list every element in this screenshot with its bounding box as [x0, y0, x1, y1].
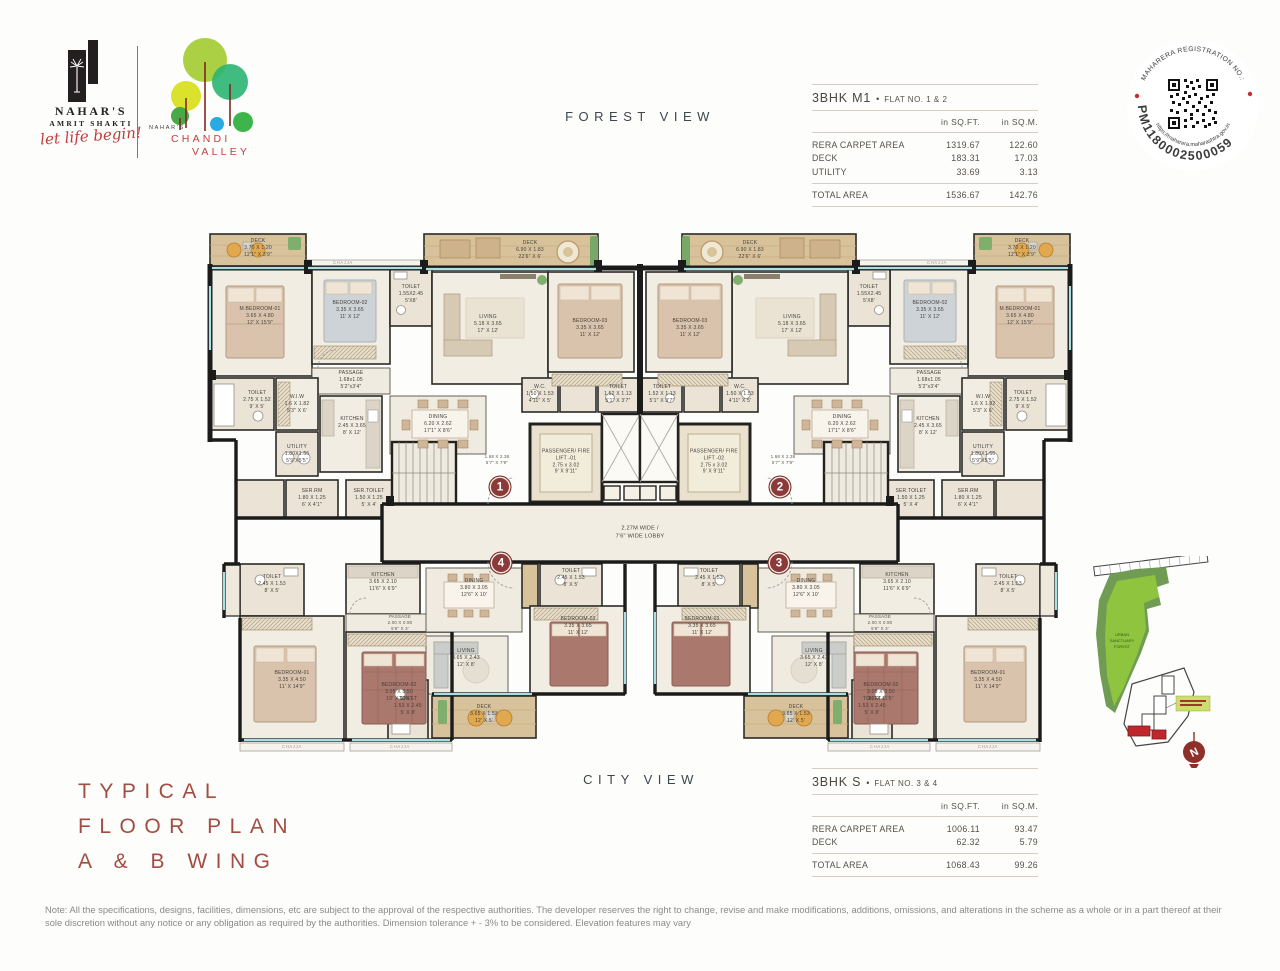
page-title-line3: A & B WING	[78, 850, 296, 874]
page-title-line2: FLOOR PLAN	[78, 815, 296, 839]
spec-table-3bhk-s: 3BHK S • FLAT NO. 3 & 4 in SQ.FT.in SQ.M…	[812, 768, 1038, 877]
city-view-label: CITY VIEW	[511, 772, 771, 787]
spec-table-3bhk-m1: 3BHK M1 • FLAT NO. 1 & 2 in SQ.FT.in SQ.…	[812, 84, 1038, 207]
stamp-dot	[1248, 92, 1252, 96]
col-sqft: in SQ.FT.	[906, 801, 980, 811]
logo-divider	[137, 46, 138, 158]
table-row: RERA CARPET AREA1319.67122.60	[812, 136, 1038, 150]
flat-numbers: FLAT NO. 1 & 2	[884, 95, 947, 104]
floor-plan-svg	[200, 228, 1080, 758]
chandivalley-trees-logo	[150, 34, 260, 134]
col-sqm: in SQ.M.	[980, 117, 1038, 127]
maharera-qr-stamp: MAHARERA REGISTRATION NO.: PM11800025000…	[1126, 38, 1260, 172]
bullet-separator: •	[866, 778, 869, 788]
col-sqft: in SQ.FT.	[906, 117, 980, 127]
forest-label-line: FOREST	[1114, 644, 1131, 649]
project-name-line1: CHANDI	[171, 133, 230, 145]
table-body: RERA CARPET AREA1006.1193.47 DECK62.325.…	[812, 817, 1038, 854]
unit-number-1: 1	[489, 476, 512, 499]
table-title: 3BHK S • FLAT NO. 3 & 4	[812, 768, 1038, 795]
forest-view-label: FOREST VIEW	[510, 109, 770, 124]
project-prefix: NAHAR'S	[149, 125, 185, 131]
unit-number-2: 2	[769, 476, 792, 499]
table-row: RERA CARPET AREA1006.1193.47	[812, 820, 1038, 834]
table-row: DECK183.3117.03	[812, 150, 1038, 164]
unit-number-4: 4	[490, 552, 513, 575]
brochure-page: NAHAR'S AMRIT SHAKTI let life begin! NAH…	[0, 0, 1280, 971]
forest-label-line: SANCTUARY	[1110, 638, 1135, 643]
table-row: UTILITY33.693.13	[812, 163, 1038, 177]
page-title-line1: TYPICAL	[78, 780, 296, 804]
table-title: 3BHK M1 • FLAT NO. 1 & 2	[812, 84, 1038, 111]
page-title: TYPICAL FLOOR PLAN A & B WING	[78, 780, 296, 885]
table-total-row: TOTAL AREA1536.67142.76	[812, 184, 1038, 206]
table-total-row: TOTAL AREA1068.4399.26	[812, 854, 1038, 876]
site-locator-map: URBAN SANCTUARY FOREST N	[1076, 556, 1220, 768]
disclaimer-note: Note: All the specifications, designs, f…	[45, 903, 1241, 929]
bullet-separator: •	[876, 94, 879, 104]
unit-type: 3BHK S	[812, 775, 861, 789]
highlighted-building	[1128, 726, 1150, 736]
highlighted-building	[1152, 730, 1166, 739]
stamp-dot	[1135, 94, 1139, 98]
project-name-line2: VALLEY	[192, 146, 250, 158]
table-row: DECK62.325.79	[812, 834, 1038, 848]
flat-numbers: FLAT NO. 3 & 4	[874, 779, 937, 788]
floor-plan: DECK 3.70 X 1.20 12'1" X 3'9" DECK 6.90 …	[200, 228, 1080, 758]
unit-number-3: 3	[768, 552, 791, 575]
col-sqm: in SQ.M.	[980, 801, 1038, 811]
unit-type: 3BHK M1	[812, 91, 871, 105]
table-header: in SQ.FT.in SQ.M.	[812, 111, 1038, 133]
tree-circles-icon	[171, 38, 253, 132]
table-body: RERA CARPET AREA1319.67122.60 DECK183.31…	[812, 133, 1038, 184]
amrit-shakti-tower-logo	[66, 40, 100, 104]
north-arrow-icon: N	[1183, 732, 1205, 768]
forest-label-line: URBAN	[1115, 632, 1129, 637]
table-header: in SQ.FT.in SQ.M.	[812, 795, 1038, 817]
brand-name: NAHAR'S	[40, 104, 142, 119]
